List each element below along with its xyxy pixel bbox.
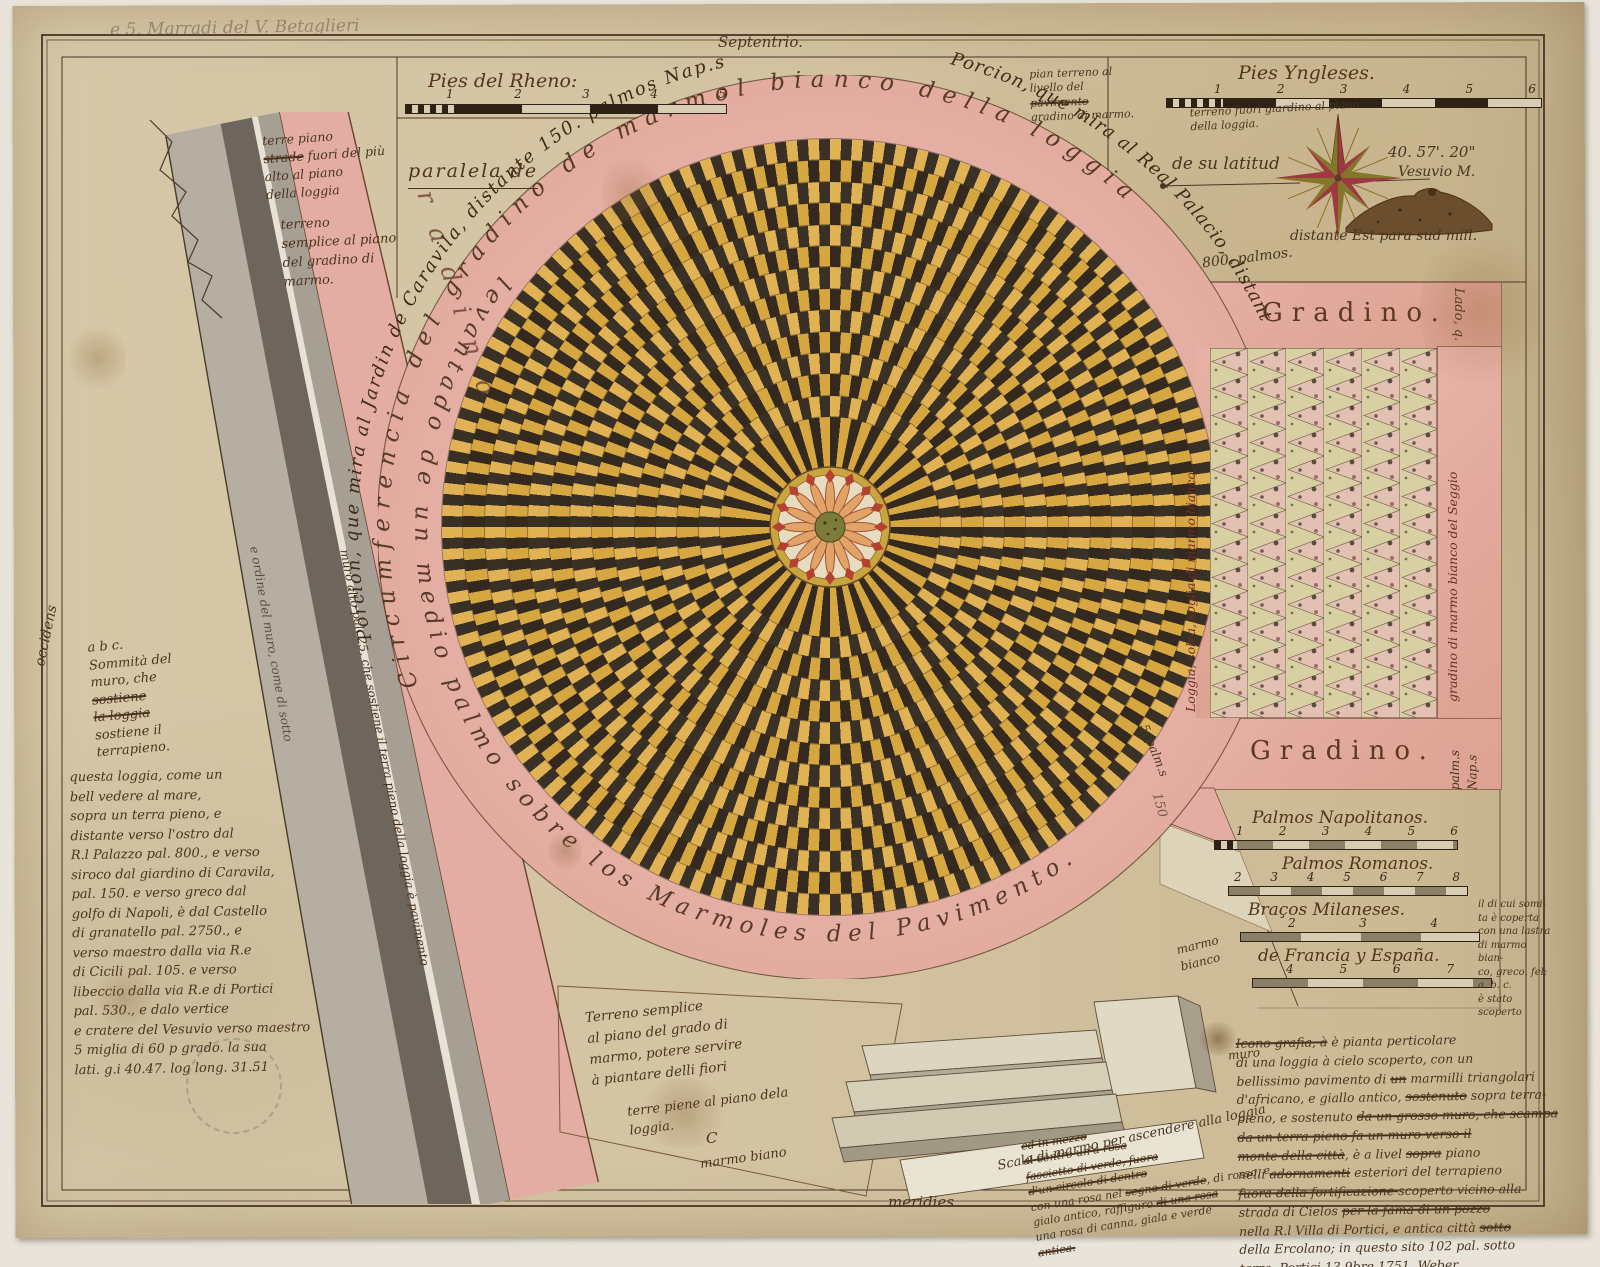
francia-espana-ticks: 4567 — [1286, 962, 1454, 976]
bracos-milaneses-bar — [1240, 932, 1480, 942]
latitude-value: 40. 57'. 20" — [1388, 142, 1475, 164]
napolitanos-fine-divisions — [1215, 841, 1237, 849]
palmos-napolitanos-ticks: 123456 — [1236, 824, 1458, 838]
note-bottom-center: Terreno sempliceal piano del grado dimar… — [584, 992, 745, 1091]
vesuvio-distance-note: distante Est para sud mill. — [1290, 226, 1477, 246]
c-mark: C — [706, 1128, 717, 1150]
napolitanos-segments — [1237, 841, 1457, 849]
svg-text:levantado de un medio palmo so: levantado de un medio palmo sobre los Ma… — [409, 272, 1082, 947]
rheno-fine-divisions — [406, 105, 454, 113]
rheno-scale-bar — [405, 104, 727, 114]
rheno-scale-ticks: 12345 — [446, 87, 726, 101]
yngleses-scale-ticks: 123456 — [1214, 82, 1536, 96]
loggia-strip-label: Loggia, solea, soglia di marmo bianco. — [1182, 356, 1200, 712]
bracos-milaneses-ticks: 234 — [1288, 916, 1438, 930]
milaneses-segments — [1241, 933, 1479, 941]
north-label: Septentrio. — [718, 32, 803, 54]
note-abc-muro: a b c.Sommità delmuro, chesostienela log… — [87, 633, 180, 763]
note-pian-terreno: pian terreno allivello delpavimentogradi… — [1029, 64, 1134, 125]
note-right-margin: il di cui somi-ta è copertacon una lastr… — [1478, 898, 1554, 1020]
gradino-bottom-label: Gradino. — [1250, 736, 1436, 766]
svg-text:Porcion, que mira al Jardin de: Porcion, que mira al Jardin de Caravila,… — [342, 51, 728, 644]
manuscript-plan-sheet: Circumferencia del gradino de marmol bia… — [0, 0, 1600, 1267]
note-bottom-right: Icono grafia, à è pianta perticolaredi u… — [1236, 1029, 1571, 1267]
vesuvio-label: Vesuvio M. — [1398, 162, 1475, 182]
romanos-segments — [1229, 887, 1467, 895]
lado-label: Lado, q. — [1448, 288, 1467, 341]
note-terre-piano: terre pianostrade fuori del piùalto al p… — [262, 124, 389, 205]
gradino-top-label: Gradino. — [1262, 298, 1448, 328]
gradino-strip-label: gradino di marmo bianco del Seggio — [1444, 372, 1462, 702]
latitude-label: de su latitud — [1172, 152, 1280, 177]
note-left-paragraph: questa loggia, come unbell vedere al mar… — [69, 764, 330, 1080]
faint-inscription: e 5. Marradi del V. Betaglieri — [110, 14, 360, 43]
yngleses-scale-label: Pies Yngleses. — [1238, 62, 1375, 84]
palmos-romanos-bar — [1228, 886, 1468, 896]
palmos-romanos-ticks: 2345678 — [1234, 870, 1460, 884]
palmos-napolitanos-bar — [1214, 840, 1458, 850]
rheno-segments — [454, 105, 726, 113]
ring-text-lower: levantado de un medio palmo sobre los Ma… — [409, 272, 1082, 947]
porcion-caravila-text: Porcion, que mira al Jardin de Caravila,… — [342, 51, 728, 644]
note-terreno-semplice: terrenosemplice al pianodel gradino dima… — [280, 211, 399, 292]
palm-nap-label: palm.s Nap.s — [1447, 712, 1482, 790]
paralela-label: paralela de — [408, 158, 538, 189]
south-label: meridies — [888, 1192, 954, 1214]
francia-espana-bar — [1252, 978, 1492, 988]
francia-segments — [1253, 979, 1491, 987]
